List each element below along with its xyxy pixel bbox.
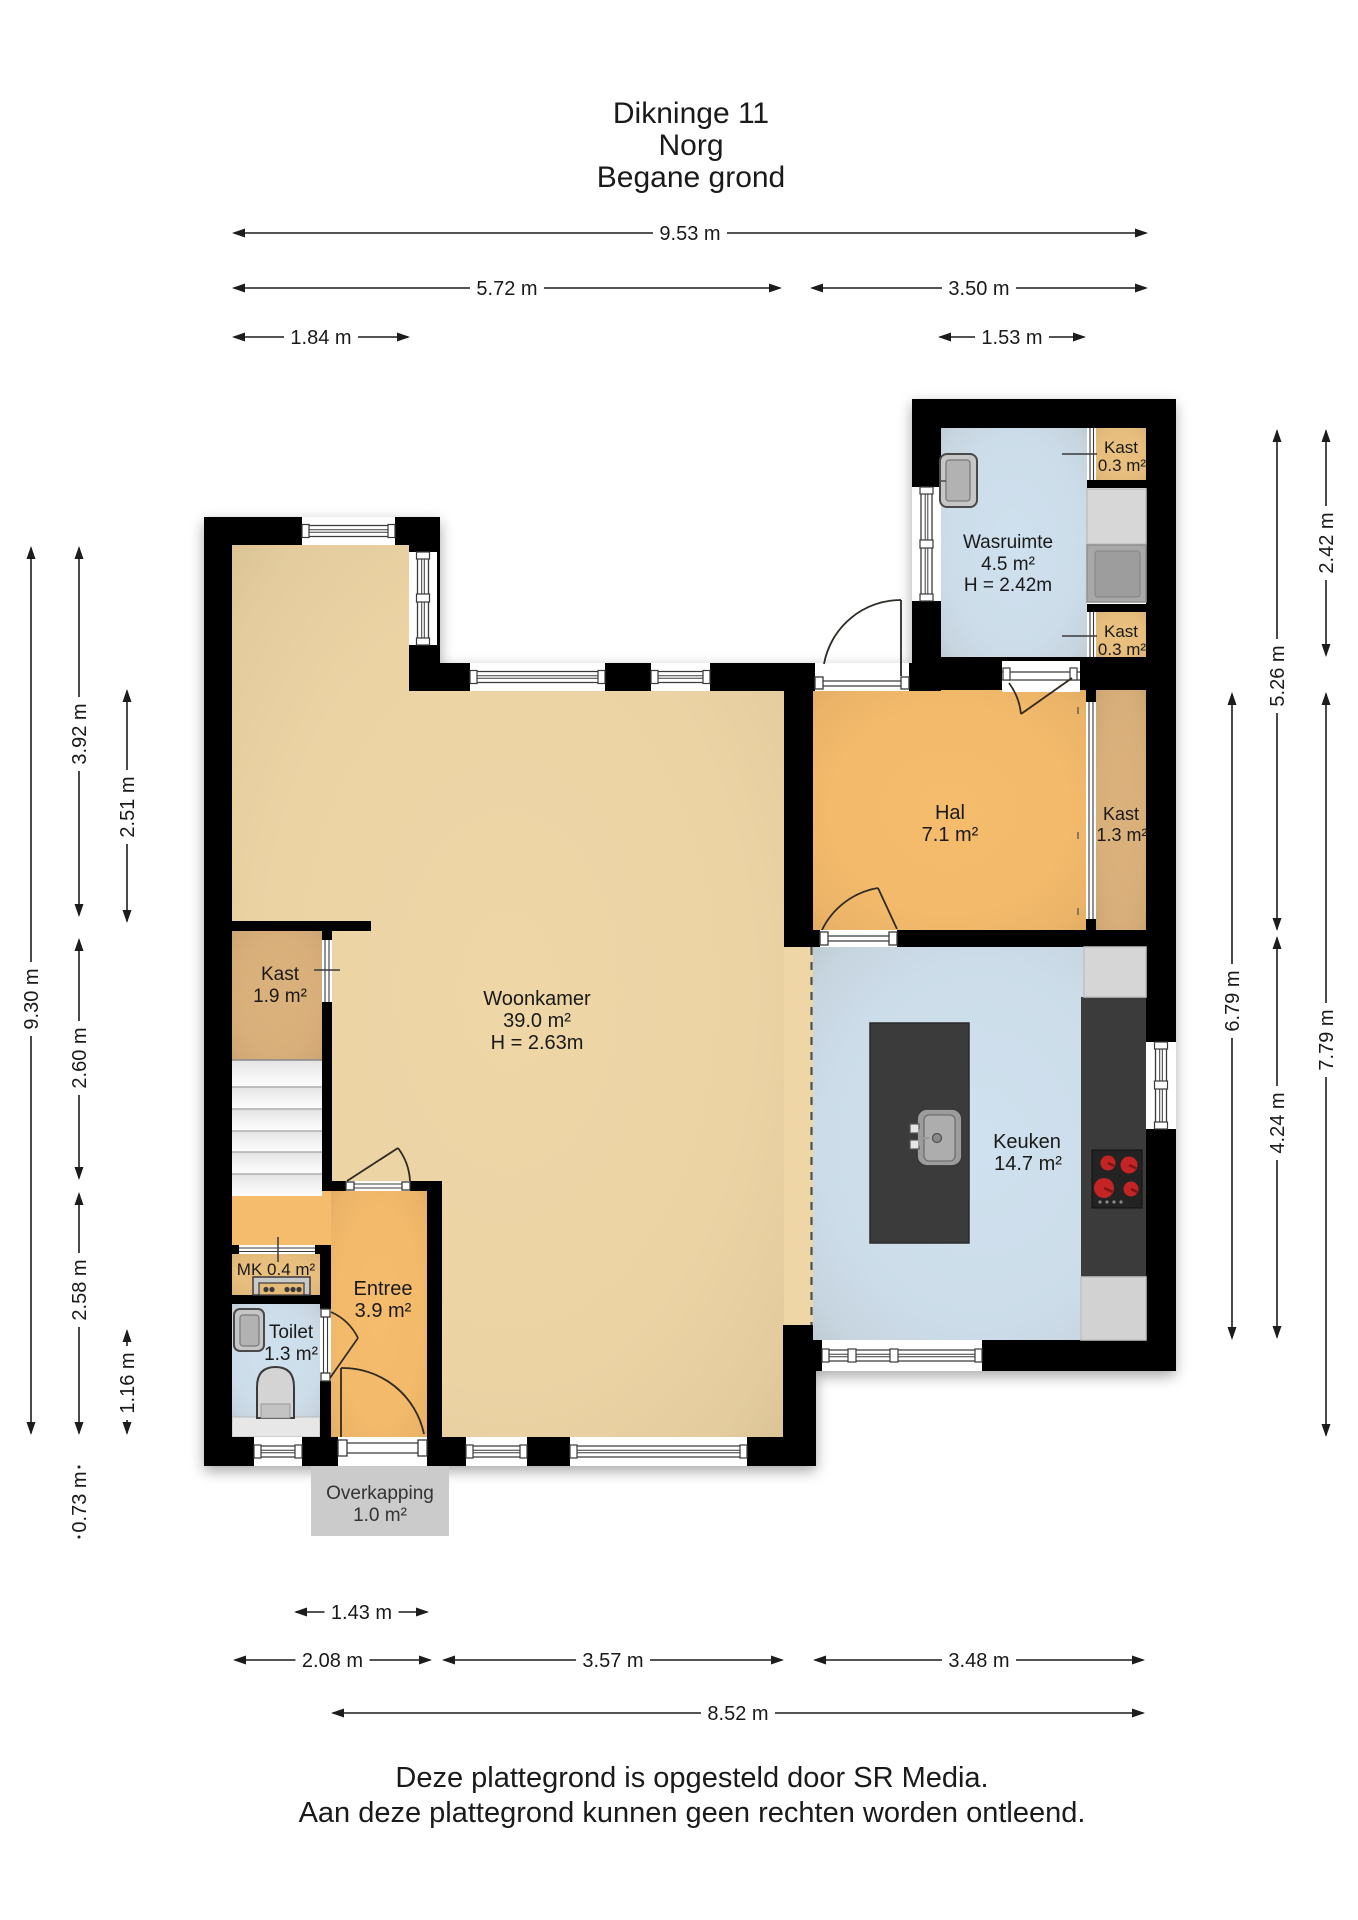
svg-text:1.9 m²: 1.9 m² <box>253 986 307 1007</box>
svg-text:H = 2.42m: H = 2.42m <box>964 575 1052 596</box>
svg-text:Kast: Kast <box>1104 622 1138 641</box>
svg-text:1.3 m²: 1.3 m² <box>1096 825 1147 845</box>
svg-text:9.30 m: 9.30 m <box>21 968 43 1029</box>
svg-text:3.48 m: 3.48 m <box>948 1650 1009 1672</box>
svg-text:Hal: Hal <box>935 802 965 824</box>
svg-text:Kast: Kast <box>1104 438 1138 457</box>
svg-text:1.43 m: 1.43 m <box>331 1602 392 1624</box>
svg-text:6.79 m: 6.79 m <box>1222 970 1244 1031</box>
svg-text:7.1 m²: 7.1 m² <box>922 824 979 846</box>
svg-text:8.52 m: 8.52 m <box>707 1703 768 1725</box>
svg-text:14.7 m²: 14.7 m² <box>994 1153 1062 1175</box>
svg-text:Woonkamer: Woonkamer <box>483 988 591 1010</box>
svg-text:Deze plattegrond is opgesteld: Deze plattegrond is opgesteld door SR Me… <box>395 1762 988 1794</box>
svg-text:H = 2.63m: H = 2.63m <box>491 1032 584 1054</box>
svg-text:Norg: Norg <box>658 129 723 162</box>
svg-text:1.0 m²: 1.0 m² <box>353 1505 407 1526</box>
svg-text:Toilet: Toilet <box>269 1322 314 1343</box>
svg-text:Kast: Kast <box>1103 804 1139 824</box>
svg-text:39.0 m²: 39.0 m² <box>503 1010 571 1032</box>
svg-text:5.26 m: 5.26 m <box>1267 645 1289 706</box>
svg-text:4.24 m: 4.24 m <box>1267 1092 1289 1153</box>
svg-text:Kast: Kast <box>261 964 300 985</box>
svg-text:Dikninge 11: Dikninge 11 <box>613 97 769 130</box>
svg-text:7.79 m: 7.79 m <box>1316 1009 1338 1070</box>
svg-text:Begane grond: Begane grond <box>597 161 786 194</box>
svg-text:MK 0.4 m²: MK 0.4 m² <box>237 1260 316 1279</box>
svg-text:2.08 m: 2.08 m <box>302 1650 363 1672</box>
svg-text:4.5 m²: 4.5 m² <box>981 554 1035 575</box>
svg-text:1.53 m: 1.53 m <box>981 327 1042 349</box>
svg-text:Overkapping: Overkapping <box>326 1483 434 1504</box>
svg-text:1.16 m: 1.16 m <box>117 1352 139 1413</box>
svg-text:3.57 m: 3.57 m <box>582 1650 643 1672</box>
svg-text:0.3 m²: 0.3 m² <box>1098 640 1147 659</box>
svg-text:3.50 m: 3.50 m <box>948 278 1009 300</box>
svg-text:3.92 m: 3.92 m <box>69 703 91 764</box>
svg-text:9.53 m: 9.53 m <box>659 223 720 245</box>
svg-text:Keuken: Keuken <box>993 1131 1061 1153</box>
svg-text:5.72 m: 5.72 m <box>476 278 537 300</box>
svg-text:2.42 m: 2.42 m <box>1316 512 1338 573</box>
svg-text:1.3 m²: 1.3 m² <box>264 1344 318 1365</box>
svg-text:2.58 m: 2.58 m <box>69 1259 91 1320</box>
svg-text:2.51 m: 2.51 m <box>117 776 139 837</box>
svg-text:Wasruimte: Wasruimte <box>963 532 1053 553</box>
svg-text:Aan deze plattegrond kunnen ge: Aan deze plattegrond kunnen geen rechten… <box>299 1797 1086 1829</box>
svg-text:2.60 m: 2.60 m <box>69 1027 91 1088</box>
svg-text:3.9 m²: 3.9 m² <box>355 1300 412 1322</box>
svg-text:0.73 m: 0.73 m <box>69 1471 91 1532</box>
svg-text:1.84 m: 1.84 m <box>290 327 351 349</box>
svg-text:Entree: Entree <box>354 1278 413 1300</box>
svg-text:0.3 m²: 0.3 m² <box>1098 456 1147 475</box>
